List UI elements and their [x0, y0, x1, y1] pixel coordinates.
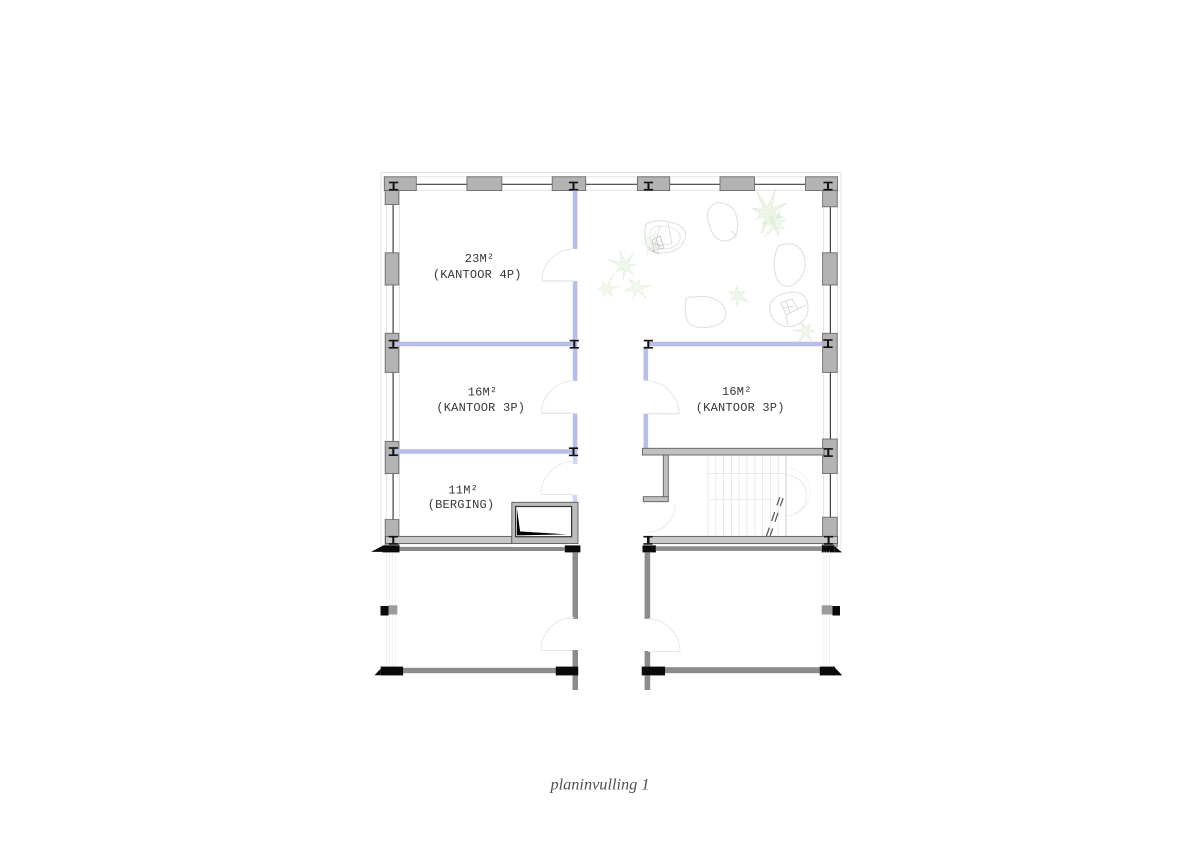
svg-text:16M²: 16M² — [468, 385, 498, 399]
svg-text:(KANTOOR 3P): (KANTOOR 3P) — [436, 401, 525, 415]
svg-text:planinvulling 1: planinvulling 1 — [549, 775, 649, 794]
svg-text:11M²: 11M² — [448, 484, 478, 498]
svg-text:23M²: 23M² — [465, 252, 495, 266]
svg-text:16M²: 16M² — [722, 385, 752, 399]
svg-text:(KANTOOR 4P): (KANTOOR 4P) — [433, 268, 522, 282]
svg-text:(KANTOOR 3P): (KANTOOR 3P) — [696, 401, 785, 415]
svg-text:(BERGING): (BERGING) — [428, 498, 495, 512]
